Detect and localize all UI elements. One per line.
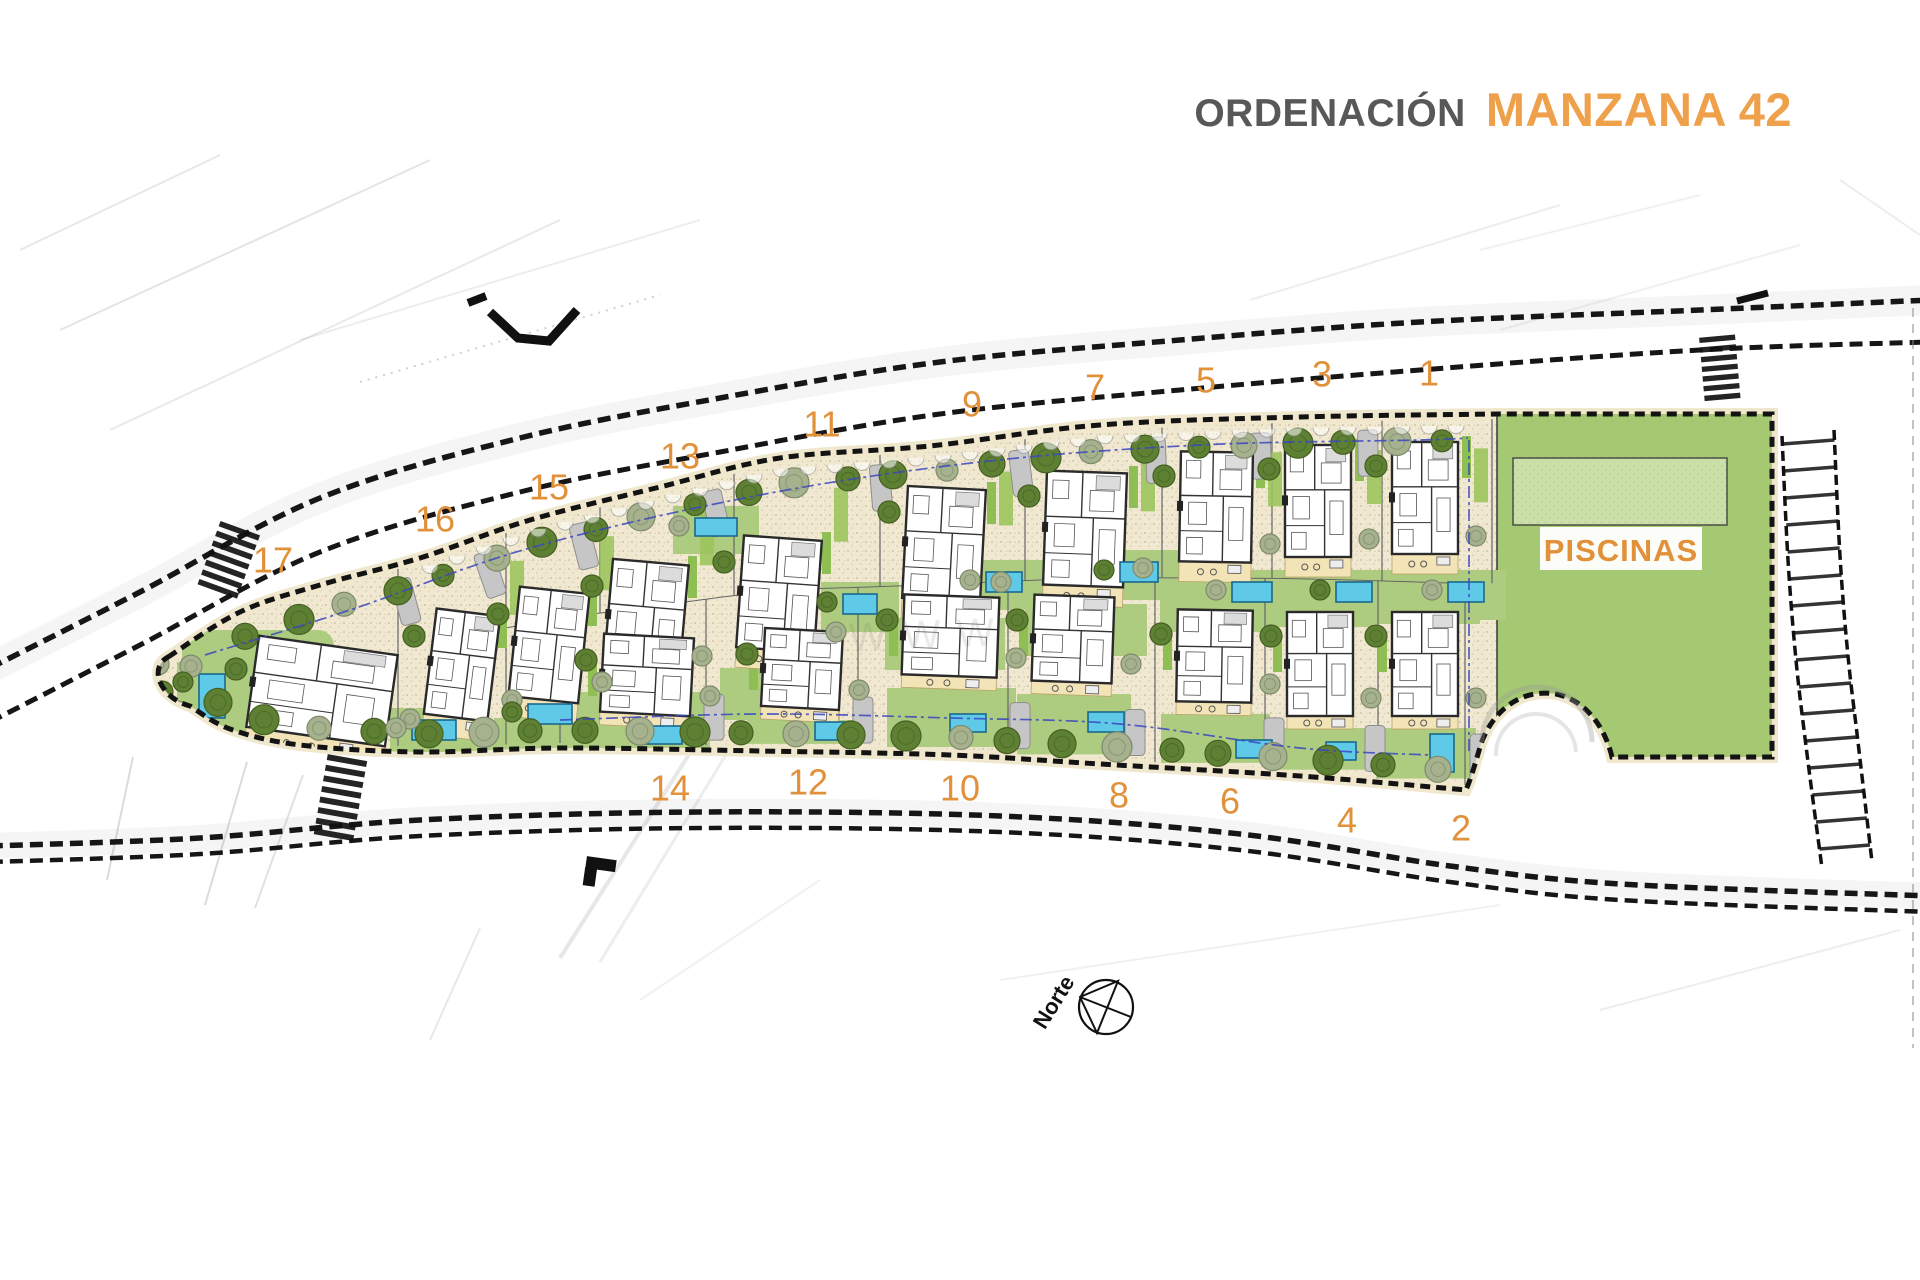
tree (572, 717, 598, 743)
entry-notch (1042, 522, 1048, 532)
terrace-furniture (1330, 560, 1343, 568)
plot-number-2: 2 (1451, 808, 1471, 849)
house-plot-6 (1173, 609, 1253, 715)
terrain-black-mark (490, 310, 577, 341)
culdesac-shading (1496, 714, 1576, 756)
crossing-stripe (1702, 364, 1738, 372)
terrain-black-mark (583, 867, 597, 886)
plot-number-11: 11 (803, 404, 840, 445)
tree (1361, 688, 1381, 708)
house-plot-7 (1039, 471, 1127, 608)
house-plot-3 (1282, 445, 1351, 577)
terrain-line (1000, 905, 1500, 980)
house-roof-patch (1096, 476, 1120, 491)
tree (680, 717, 710, 747)
crossing-stripe (1702, 373, 1738, 381)
entry-notch (1284, 659, 1290, 669)
tree (736, 479, 762, 505)
house-roof-patch (659, 639, 686, 650)
tree (225, 658, 247, 680)
tree (669, 516, 689, 536)
tree (1371, 753, 1395, 777)
tree (361, 718, 387, 744)
tree (1260, 674, 1280, 694)
plot-number-9: 9 (962, 384, 982, 425)
stair-band-rung (1809, 764, 1861, 768)
tree (1260, 625, 1282, 647)
communal-pool-basin (1513, 458, 1727, 525)
pool-plot-3 (1336, 582, 1372, 602)
tree (626, 717, 654, 745)
tree (502, 702, 522, 722)
stair-band-rail (1782, 436, 1822, 868)
tree (1425, 756, 1451, 782)
site-plan-drawing: PISCINAS WWW Norte 171615131197531141210… (0, 0, 1920, 1280)
tree (713, 551, 735, 573)
stair-band-rung (1802, 710, 1854, 714)
entry-notch (1030, 633, 1036, 643)
tree-texture (164, 634, 176, 646)
plot-number-17: 17 (253, 540, 293, 581)
tree (891, 721, 921, 751)
tree (1102, 732, 1132, 762)
hedge (688, 556, 697, 598)
plot-number-12: 12 (788, 762, 828, 803)
tree (949, 725, 973, 749)
plot-number-15: 15 (529, 467, 569, 508)
terrain-line (60, 160, 430, 330)
stair-band-rung (1792, 602, 1844, 606)
title-prefix: ORDENACIÓN (1194, 92, 1466, 136)
terrain-line (640, 880, 820, 1000)
entry-notch (511, 636, 518, 647)
hedge (834, 488, 848, 542)
entry-notch (427, 655, 434, 666)
house-roof-patch (963, 599, 992, 610)
tree (1048, 730, 1076, 758)
tree (692, 646, 712, 666)
tree (878, 501, 900, 523)
stair-band-rung (1790, 575, 1842, 579)
plot-number-16: 16 (415, 499, 455, 540)
terrain-line (1840, 180, 1920, 235)
tree (1431, 430, 1453, 452)
tree (1160, 738, 1184, 762)
crossing-upper-right (1699, 335, 1740, 402)
tree (1310, 580, 1330, 600)
north-arrow: Norte (1028, 971, 1133, 1034)
house-plot-4 (1284, 612, 1353, 729)
house-roof-patch (1328, 615, 1348, 627)
crossing-stripe (321, 786, 361, 799)
tree (684, 494, 706, 516)
stair-band-rung (1784, 467, 1836, 471)
terrain-line (110, 220, 560, 430)
tree (469, 717, 499, 747)
entry-notch (1389, 492, 1395, 502)
terrain-line (1250, 205, 1560, 300)
page-title: ORDENACIÓN MANZANA 42 (1194, 82, 1792, 137)
stair-band-rung (1812, 791, 1863, 795)
stair-band-rung (1816, 818, 1867, 822)
pool-plot-13 (695, 518, 737, 536)
terrace-furniture (1228, 565, 1241, 573)
entry-notch (1282, 495, 1288, 505)
crossing-stripe (1703, 383, 1739, 391)
terrace-furniture (813, 712, 826, 721)
plot-number-3: 3 (1312, 354, 1332, 395)
stair-band-rung (1794, 629, 1846, 633)
terrace-furniture (1227, 705, 1240, 713)
tree (1365, 625, 1387, 647)
tree (386, 718, 406, 738)
terrain-line (1600, 930, 1900, 1010)
tree (1133, 558, 1153, 578)
tree (700, 686, 720, 706)
pool-plot-5 (1232, 582, 1272, 602)
tree (487, 603, 509, 625)
communal-pools-area-label-group: PISCINAS (1513, 458, 1727, 570)
entry-notch (1389, 659, 1395, 669)
house-plot-8 (1028, 595, 1114, 697)
tree (1121, 654, 1141, 674)
pool-plot-1 (1448, 582, 1484, 602)
crossing-stripe (1704, 393, 1740, 401)
tree (826, 622, 846, 642)
entry-notch (902, 536, 909, 546)
terrace-furniture (1332, 719, 1345, 727)
tree (581, 575, 603, 597)
plot-number-7: 7 (1085, 367, 1105, 408)
stair-band-rung (1805, 737, 1857, 741)
tree (1422, 580, 1442, 600)
tree (849, 680, 869, 700)
tree (1258, 458, 1280, 480)
house-plot-2 (1389, 612, 1458, 729)
tree (1018, 485, 1040, 507)
tree (960, 570, 980, 590)
plot-number-4: 4 (1337, 800, 1357, 841)
crossing-stripe (323, 775, 363, 788)
house-plot-12 (757, 628, 843, 723)
terrace-furniture (1437, 557, 1450, 565)
house-roof-patch (1084, 599, 1108, 610)
stair-band-rung (1782, 440, 1834, 444)
tree (1365, 455, 1387, 477)
crossing-stripe (325, 765, 365, 778)
watermark-text: WWW (848, 610, 1011, 660)
tree (1188, 436, 1210, 458)
tree (592, 672, 612, 692)
tree (1150, 623, 1172, 645)
terrain-line (20, 155, 220, 250)
house-roof-patch (955, 492, 979, 507)
hedge (1474, 448, 1488, 502)
stair-band-rung (1786, 521, 1838, 525)
tree (249, 705, 279, 735)
terrain-line (430, 928, 480, 1040)
tree (518, 719, 542, 743)
terrain-line (1480, 195, 1700, 250)
entry-notch (737, 585, 744, 595)
plot-number-6: 6 (1220, 781, 1240, 822)
pools-area-label: PISCINAS (1544, 533, 1698, 568)
site-plan-page: PISCINAS WWW Norte 171615131197531141210… (0, 0, 1920, 1280)
house-plot-1 (1389, 442, 1458, 574)
tree (1094, 560, 1114, 580)
stair-band-rung (1799, 683, 1851, 687)
stair-band-rung (1796, 656, 1848, 660)
north-label: Norte (1028, 971, 1080, 1033)
plot-number-10: 10 (940, 768, 980, 809)
house-roof-patch (561, 594, 583, 609)
entry-notch (760, 663, 767, 673)
plot-number-5: 5 (1196, 360, 1216, 401)
pool-plot-11 (843, 594, 877, 614)
terrain-black-mark (468, 296, 486, 303)
tree (783, 721, 809, 747)
entry-notch (605, 609, 612, 619)
terrace-furniture (966, 680, 979, 688)
house-roof-patch (1433, 615, 1453, 627)
house-roof-patch (791, 542, 815, 557)
terrain-line (107, 757, 133, 880)
stair-band-rail (1834, 430, 1872, 862)
plot-number-8: 8 (1109, 775, 1129, 816)
plot-number-14: 14 (650, 768, 690, 809)
hedge (999, 471, 1013, 525)
tree (204, 688, 232, 716)
tree (1153, 465, 1175, 487)
tree (1206, 580, 1226, 600)
tree (729, 721, 753, 745)
house-plot-5 (1176, 451, 1253, 582)
plot-number-13: 13 (660, 436, 700, 477)
tree (1260, 534, 1280, 554)
tree (575, 649, 597, 671)
tree (817, 592, 837, 612)
tree (403, 625, 425, 647)
tree (173, 672, 193, 692)
house-roof-patch (659, 566, 683, 581)
entry-notch (1174, 651, 1180, 661)
stair-band-rung (1820, 845, 1871, 849)
house-roof-patch (1224, 613, 1247, 624)
tree (736, 643, 758, 665)
tree (837, 721, 865, 749)
hedge (822, 532, 831, 574)
tree (994, 728, 1020, 754)
tree (991, 572, 1011, 592)
crossing-stripe (1699, 335, 1735, 343)
plot-number-1: 1 (1419, 353, 1439, 394)
terrace-furniture (1437, 719, 1450, 727)
interior-wall (1213, 452, 1214, 496)
interior-wall (1221, 647, 1222, 702)
stair-band-rung (1788, 548, 1840, 552)
title-highlight: MANZANA 42 (1486, 82, 1792, 137)
interior-wall (1211, 610, 1212, 647)
hedge (1129, 466, 1138, 508)
tree (384, 577, 412, 605)
crossing-stripe (1701, 354, 1737, 362)
tree (307, 716, 331, 740)
stair-band-rung (1785, 494, 1837, 498)
terrace-furniture (1086, 685, 1099, 693)
entry-notch (1177, 501, 1183, 511)
tree (1205, 740, 1231, 766)
terrace-furniture (661, 718, 674, 727)
crossing-stripe (319, 797, 359, 810)
hedge (987, 482, 996, 524)
tree (1359, 529, 1379, 549)
